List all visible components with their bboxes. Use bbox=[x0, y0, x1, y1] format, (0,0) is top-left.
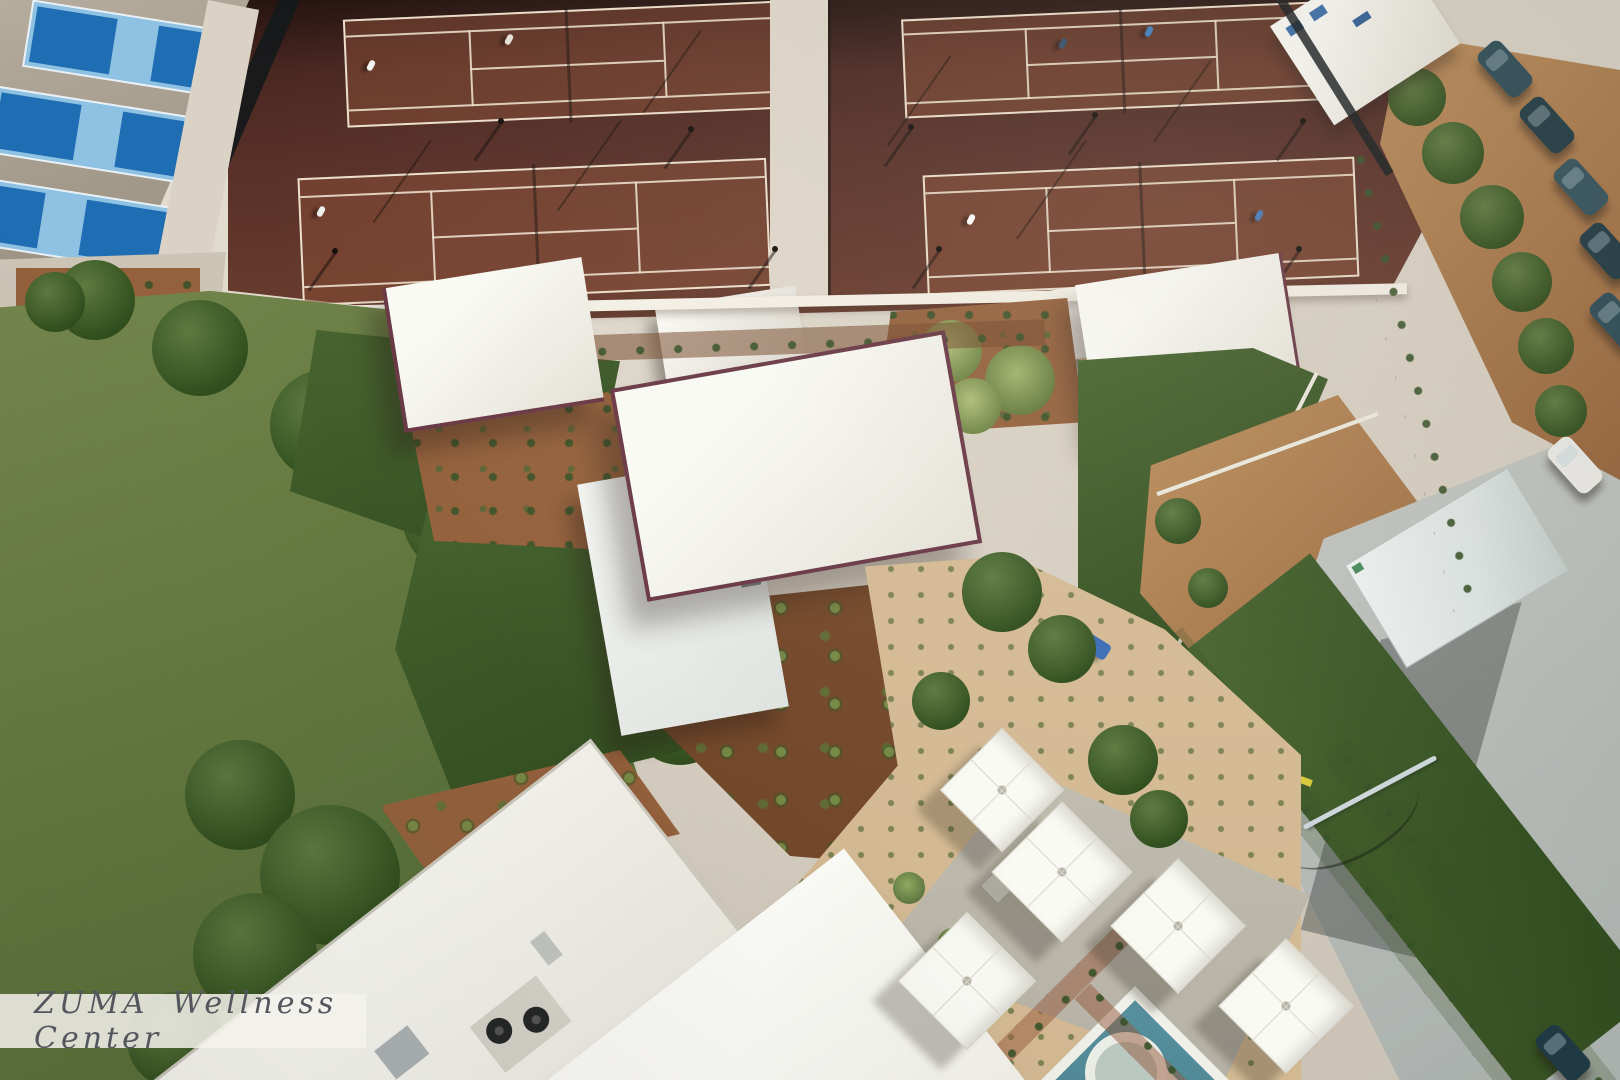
tree bbox=[152, 300, 248, 396]
tree bbox=[1155, 498, 1201, 544]
court-light-pole bbox=[688, 126, 694, 132]
court-light-pole bbox=[772, 246, 778, 252]
blue-door bbox=[1309, 4, 1328, 21]
tree bbox=[1460, 185, 1524, 249]
skylight bbox=[374, 1025, 429, 1079]
tree bbox=[1188, 568, 1228, 608]
tree bbox=[912, 672, 970, 730]
court-light-pole bbox=[936, 246, 942, 252]
tennis-court-upper-right bbox=[901, 1, 1341, 119]
tennis-court-upper-left bbox=[343, 0, 791, 127]
tree bbox=[25, 272, 85, 332]
tree bbox=[1535, 385, 1587, 437]
agave bbox=[893, 872, 925, 904]
tree bbox=[1088, 725, 1158, 795]
court-light-pole bbox=[1296, 246, 1302, 252]
court-light-pole bbox=[1092, 112, 1098, 118]
court-divider-fence bbox=[828, 0, 831, 298]
pavilion-left-roof bbox=[382, 257, 604, 433]
court-light-pole bbox=[908, 124, 914, 130]
tree bbox=[1422, 122, 1484, 184]
hvac-pad bbox=[470, 976, 572, 1073]
tree bbox=[1492, 252, 1552, 312]
court-light-pole bbox=[498, 118, 504, 124]
hvac-fan bbox=[481, 1013, 517, 1049]
tree bbox=[962, 552, 1042, 632]
tree bbox=[1028, 615, 1096, 683]
aerial-photo-zuma-wellness-center: ZUMA Wellness Center bbox=[0, 0, 1620, 1080]
roof-vent bbox=[530, 931, 563, 966]
tree bbox=[1130, 790, 1188, 848]
caption-band: ZUMA Wellness Center bbox=[0, 994, 366, 1048]
blue-sign bbox=[1352, 11, 1371, 28]
hvac-fan bbox=[518, 1001, 554, 1037]
container-label bbox=[1352, 562, 1365, 574]
court-center-walkway bbox=[770, 0, 828, 300]
court-light-pole bbox=[1300, 118, 1306, 124]
court-light-pole bbox=[332, 248, 338, 254]
tree bbox=[1518, 318, 1574, 374]
caption-text: ZUMA Wellness Center bbox=[34, 986, 366, 1056]
